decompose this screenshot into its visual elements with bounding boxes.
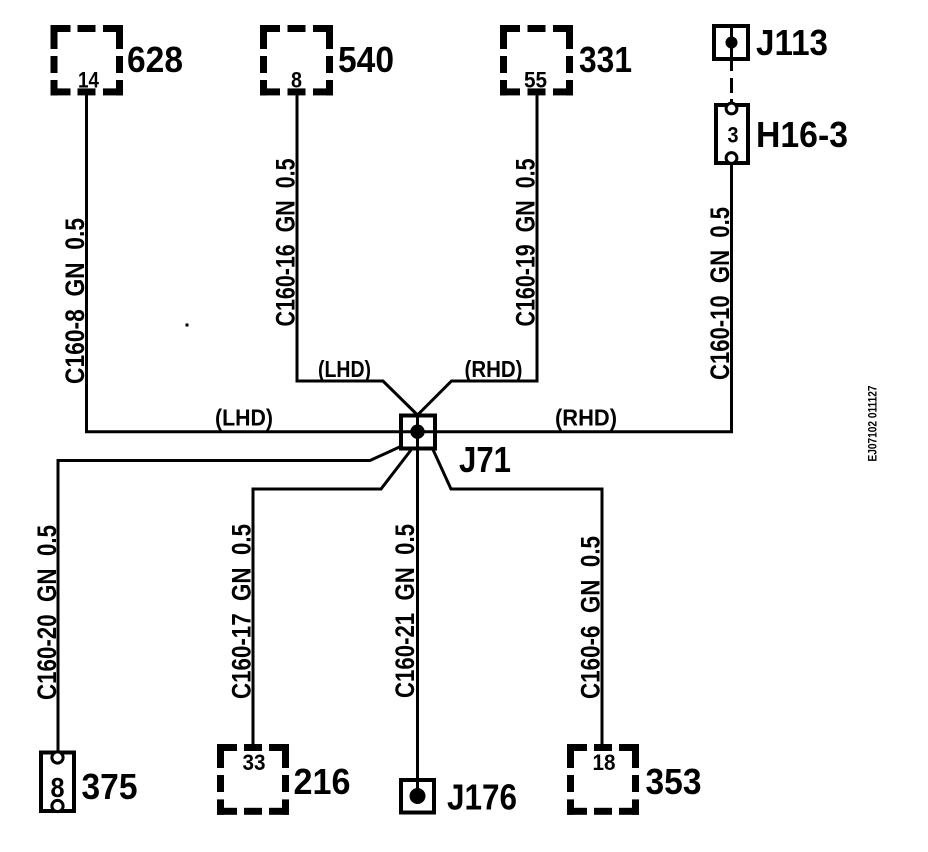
svg-text:C160-17 GN 0.5: C160-17 GN 0.5 xyxy=(227,524,257,699)
svg-text:C160-6 GN 0.5: C160-6 GN 0.5 xyxy=(576,536,606,699)
svg-text:C160-8 GN 0.5: C160-8 GN 0.5 xyxy=(60,218,90,384)
svg-text:14: 14 xyxy=(78,68,100,93)
svg-text:J113: J113 xyxy=(756,22,828,63)
svg-text:(RHD): (RHD) xyxy=(555,405,617,431)
svg-text:628: 628 xyxy=(127,39,183,80)
svg-text:540: 540 xyxy=(338,39,394,80)
svg-text:H16-3: H16-3 xyxy=(756,114,848,155)
svg-text:C160-21 GN 0.5: C160-21 GN 0.5 xyxy=(390,524,420,698)
svg-text:C160-10 GN 0.5: C160-10 GN 0.5 xyxy=(705,207,735,380)
svg-text:J71: J71 xyxy=(459,439,511,480)
svg-text:353: 353 xyxy=(646,761,702,802)
svg-text:(LHD): (LHD) xyxy=(215,405,273,431)
svg-text:216: 216 xyxy=(294,761,351,802)
svg-text:C160-20 GN 0.5: C160-20 GN 0.5 xyxy=(32,525,62,700)
svg-text:(RHD): (RHD) xyxy=(465,356,523,382)
svg-text:C160-16 GN 0.5: C160-16 GN 0.5 xyxy=(271,159,301,327)
svg-text:33: 33 xyxy=(243,750,266,775)
svg-text:J176: J176 xyxy=(447,777,517,818)
svg-text:3: 3 xyxy=(728,123,739,148)
svg-text:331: 331 xyxy=(579,39,632,80)
svg-text:8: 8 xyxy=(51,772,65,803)
svg-text:(LHD): (LHD) xyxy=(318,356,371,382)
svg-text:55: 55 xyxy=(524,68,547,93)
svg-text:18: 18 xyxy=(593,750,616,775)
svg-text:C160-19 GN 0.5: C160-19 GN 0.5 xyxy=(511,159,541,327)
svg-text:EJ07102 011127: EJ07102 011127 xyxy=(866,385,880,461)
svg-text:8: 8 xyxy=(291,68,302,93)
svg-text:375: 375 xyxy=(82,766,138,807)
